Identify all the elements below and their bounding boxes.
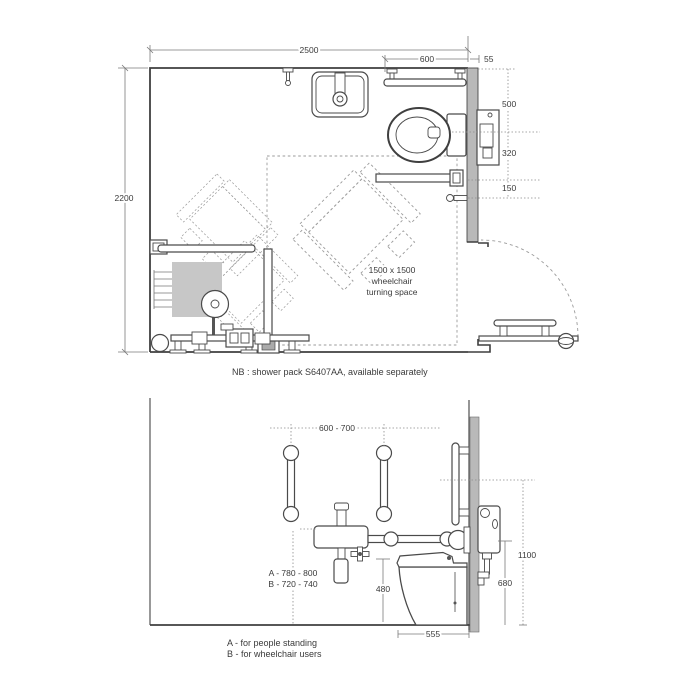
basin-tap-handle-center <box>337 96 343 102</box>
washbasin-plan <box>312 72 368 117</box>
bottle-trap <box>334 559 348 583</box>
toilet-flush-detail <box>428 127 440 138</box>
turning-space-label: 1500 x 1500 wheelchair turning space <box>366 265 417 297</box>
turning-space-label-line1: 1500 x 1500 <box>369 265 416 275</box>
toilet-seat-lid <box>397 553 467 568</box>
vertical-grab-rail-1 <box>284 446 299 522</box>
shower-head-plan <box>202 291 229 339</box>
door-knob-detail <box>559 338 574 345</box>
basin-tap <box>337 509 346 527</box>
door-jamb-top <box>467 242 488 247</box>
door-rail-post-left <box>500 326 507 336</box>
flush-pipe-top <box>483 553 492 559</box>
bathroom-technical-drawing: 1500 x 1500 wheelchair turning space <box>0 0 700 700</box>
door-rail-post-right <box>542 326 549 336</box>
vertical-grab-rail-2 <box>377 446 392 522</box>
toilet-elevation <box>397 553 467 626</box>
coat-hook <box>283 68 293 86</box>
plan-note: NB : shower pack S6407AA, available sepa… <box>232 367 428 377</box>
washbasin-elevation <box>314 503 369 583</box>
basin-body <box>314 526 368 548</box>
dim-projection: 555 <box>426 629 440 639</box>
towel-rail <box>154 270 173 309</box>
cistern-elevation <box>478 506 500 585</box>
dim-150: 150 <box>502 183 516 193</box>
toilet-roll-holder <box>447 195 468 202</box>
legend-a: A - for people standing <box>227 638 317 648</box>
basin-tap-lever <box>335 503 349 510</box>
grab-rail-left-wall <box>150 240 255 254</box>
toilet-body <box>399 567 467 625</box>
plan-view: 1500 x 1500 wheelchair turning space <box>115 36 578 377</box>
dim-600: 600 <box>420 54 434 64</box>
dim-2500: 2500 <box>300 45 319 55</box>
elevation-view: 600 - 700 A - 780 - 800 B - 720 - 740 48… <box>150 398 536 659</box>
dim-500: 500 <box>502 99 516 109</box>
drawing-canvas: 1500 x 1500 wheelchair turning space <box>0 0 700 700</box>
turning-space-label-line3: turning space <box>366 287 417 297</box>
hinged-support-arm <box>368 527 470 553</box>
turning-space-label-line2: wheelchair <box>371 276 413 286</box>
drop-down-rail-plan <box>376 170 463 186</box>
toilet-fixing-dot <box>454 602 457 605</box>
grab-rail-bar <box>384 79 466 86</box>
drop-down-rail-bracket-inner <box>453 173 460 183</box>
cistern-flush-plate <box>480 124 493 147</box>
grab-rail-top-right <box>384 69 466 86</box>
arm-wall-plate <box>464 527 470 553</box>
flush-pipe-entry <box>478 578 484 585</box>
flush-pipe-elbow <box>478 572 489 578</box>
drop-down-rail-bar <box>376 174 452 182</box>
floor-drain <box>152 335 169 352</box>
turning-space-outline <box>267 156 457 345</box>
toilet-lid-button <box>447 556 451 560</box>
dim-seat-height: 480 <box>376 584 390 594</box>
door-grab-rail <box>494 320 556 326</box>
shower-head-center <box>211 300 219 308</box>
cistern-button <box>483 148 492 158</box>
left-rail-bar <box>158 245 255 252</box>
dim-2200: 2200 <box>115 193 134 203</box>
dim-55: 55 <box>484 54 494 64</box>
dim-320: 320 <box>502 148 516 158</box>
wall-vertical-rail <box>452 443 469 525</box>
cistern-flush-button <box>481 509 490 518</box>
dim-height-b: B - 720 - 740 <box>268 579 317 589</box>
toilet-plan <box>388 108 466 162</box>
dim-arm-height: 680 <box>498 578 512 588</box>
shower-fittings-plan <box>170 324 309 353</box>
legend-b: B - for wheelchair users <box>227 649 322 659</box>
cistern-lever <box>493 520 498 529</box>
door-plan <box>479 240 578 349</box>
right-wall <box>467 68 478 242</box>
dim-cistern-height: 1100 <box>518 550 537 560</box>
isolation-valve <box>351 547 369 561</box>
cistern-screw <box>488 113 492 117</box>
dim-height-a: A - 780 - 800 <box>269 568 318 578</box>
elevation-legend: A - for people standing B - for wheelcha… <box>227 638 322 659</box>
concealed-cistern-plan <box>477 110 499 165</box>
dim-rail-spacing: 600 - 700 <box>319 423 355 433</box>
riser-rail-bar <box>264 249 272 339</box>
arm-hinge-1 <box>384 532 398 546</box>
